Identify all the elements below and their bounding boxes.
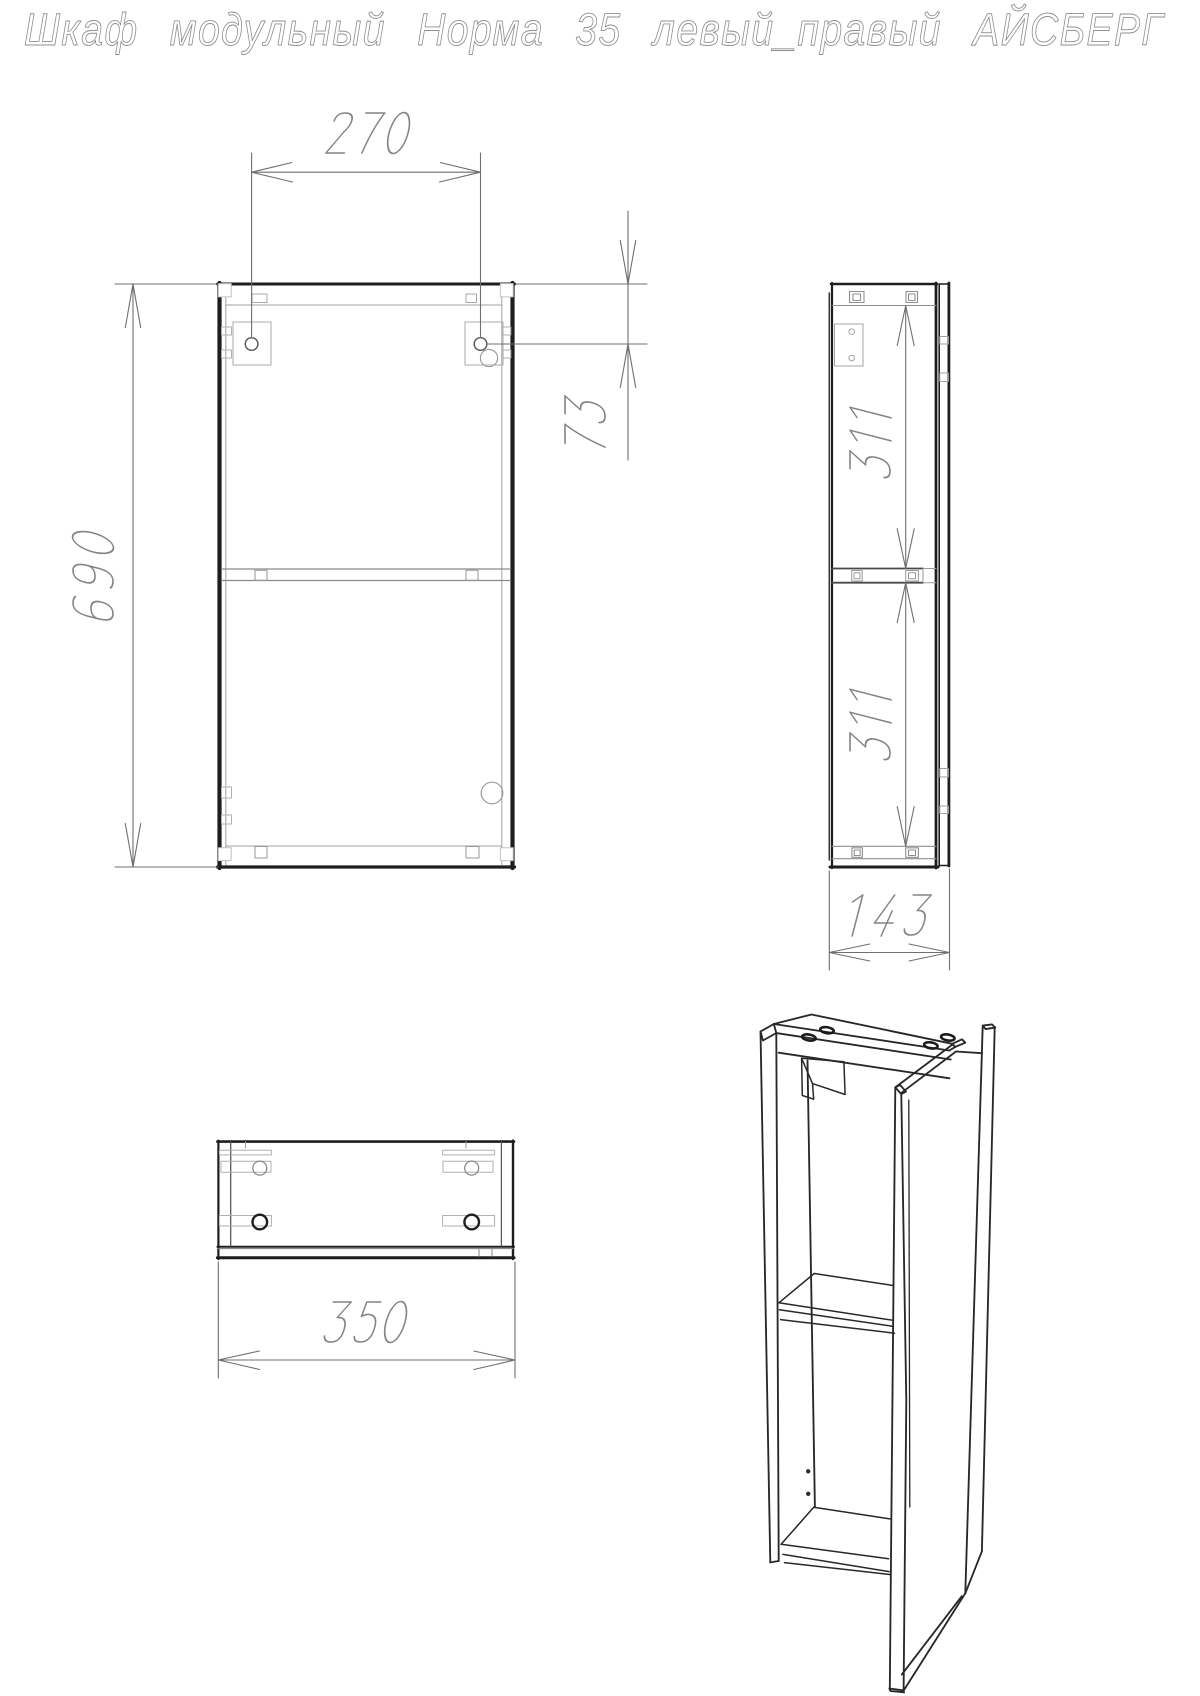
svg-text:Шкаф модульный Норма 35 ле: Шкаф модульный Норма 35 левый_правый АЙС… [24,4,1166,55]
